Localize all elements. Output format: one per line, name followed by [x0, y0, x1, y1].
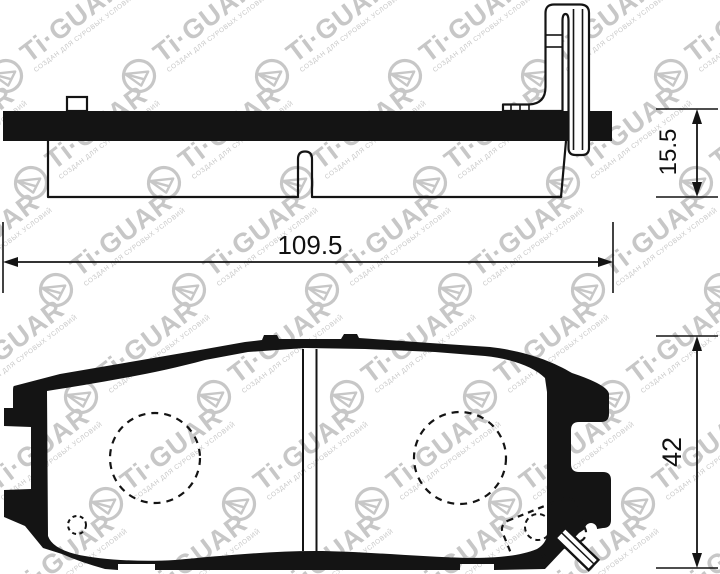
backing-plate-side: [3, 111, 612, 141]
front-view-drawing: [4, 334, 611, 570]
piston-contact-circle-right: [414, 412, 506, 504]
reference-hole-left: [68, 516, 86, 534]
dimension-label-thickness: 15.5: [655, 129, 682, 176]
drawing-svg: 15.5 109.5: [0, 0, 720, 574]
friction-material-outline: [48, 141, 566, 197]
dimension-109-5: 109.5: [3, 222, 613, 293]
locating-tab: [67, 97, 87, 111]
dimension-label-length: 109.5: [277, 230, 342, 260]
side-view-drawing: [3, 5, 612, 198]
pad-front-outline: [4, 334, 611, 570]
dimension-15-5: 15.5: [655, 109, 718, 197]
dimension-42: 42: [656, 336, 718, 568]
dimension-label-height: 42: [657, 437, 687, 467]
brake-pad-technical-drawing: Ti·GUARСОЗДАН ДЛЯ СУРОВЫХ УСЛОВИЙTi·GUAR…: [0, 0, 720, 574]
center-slot-lines: [303, 349, 317, 551]
piston-contact-circle-left: [110, 413, 200, 503]
